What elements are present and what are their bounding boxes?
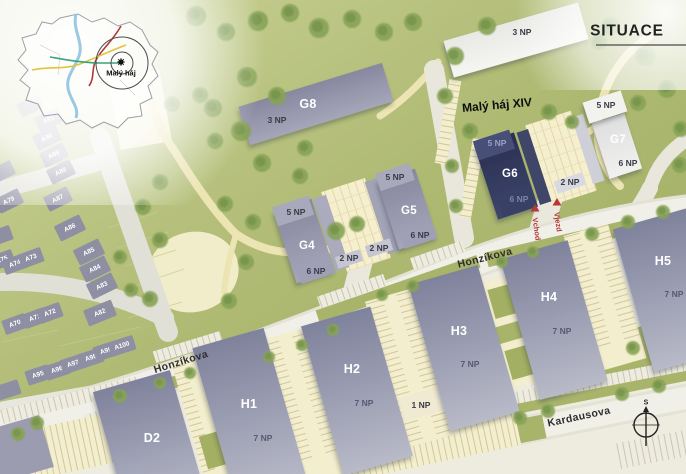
- site-plan-svg: A91 A90 A89 A88 A87 A79 A86 A85 A84 A83 …: [0, 0, 686, 474]
- building-g4-label: G4: [299, 240, 315, 252]
- building-g6-label: G6: [502, 168, 518, 180]
- g45-np-left: 2 NP: [340, 253, 359, 263]
- page-title: SITUACE: [590, 23, 664, 40]
- building-g8-label: G8: [299, 97, 316, 111]
- building-h2-label: H2: [344, 362, 361, 376]
- inset-place-label: Malý háj: [106, 69, 136, 78]
- g7-np-top: 5 NP: [597, 100, 616, 110]
- g4-np-top: 5 NP: [287, 207, 306, 217]
- g67-np: 2 NP: [561, 177, 580, 187]
- g5-np-bottom: 6 NP: [411, 230, 430, 240]
- h2-np: 7 NP: [355, 398, 374, 408]
- g6-np-bottom: 6 NP: [510, 194, 529, 204]
- building-d2-label: D2: [144, 431, 161, 445]
- building-h1-label: H1: [241, 397, 258, 411]
- compass-north-label: S: [644, 400, 649, 407]
- h23-np: 1 NP: [412, 400, 431, 410]
- building-g7-label: G7: [610, 134, 626, 146]
- building-h5-label: H5: [655, 254, 672, 268]
- g6-np-top: 5 NP: [488, 138, 507, 148]
- location-marker-icon: [117, 58, 125, 66]
- north-np-label: 3 NP: [513, 27, 532, 37]
- g4-np-bottom: 6 NP: [307, 266, 326, 276]
- g5-np-top: 5 NP: [386, 172, 405, 182]
- h1-np: 7 NP: [254, 433, 273, 443]
- h3-np: 7 NP: [461, 359, 480, 369]
- building-h4-label: H4: [541, 290, 558, 304]
- h4-np: 7 NP: [553, 326, 572, 336]
- site-plan: A91 A90 A89 A88 A87 A79 A86 A85 A84 A83 …: [0, 0, 686, 474]
- building-g5-label: G5: [401, 205, 417, 217]
- g7-np-bottom: 6 NP: [619, 158, 638, 168]
- building-h3-label: H3: [451, 324, 468, 338]
- g8-np-label: 3 NP: [268, 115, 287, 125]
- h5-np: 7 NP: [665, 289, 684, 299]
- g45-np-right: 2 NP: [370, 243, 389, 253]
